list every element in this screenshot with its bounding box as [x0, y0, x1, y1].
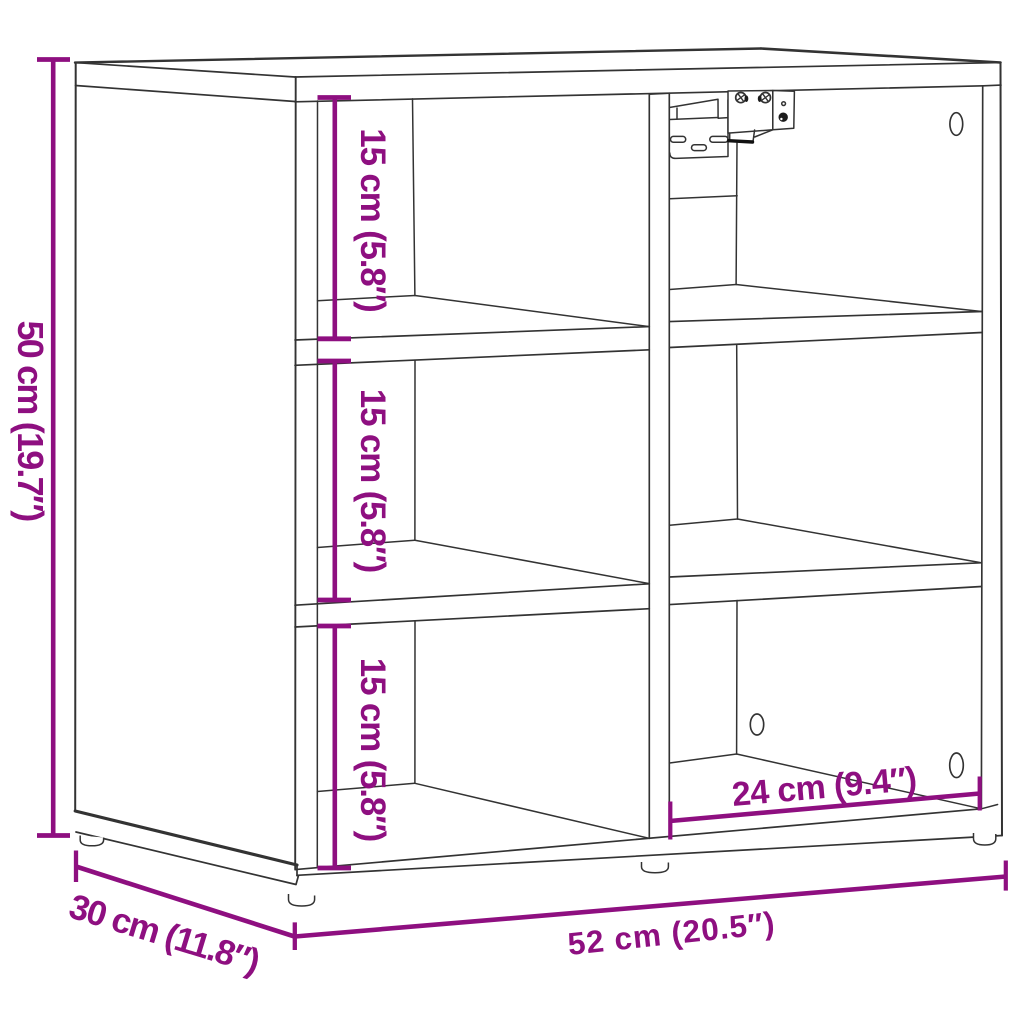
- svg-text:15 cm (5.8″): 15 cm (5.8″): [353, 128, 392, 311]
- svg-text:50 cm (19.7″): 50 cm (19.7″): [10, 321, 51, 522]
- svg-text:15 cm (5.8″): 15 cm (5.8″): [353, 389, 392, 572]
- svg-text:15 cm (5.8″): 15 cm (5.8″): [353, 658, 392, 841]
